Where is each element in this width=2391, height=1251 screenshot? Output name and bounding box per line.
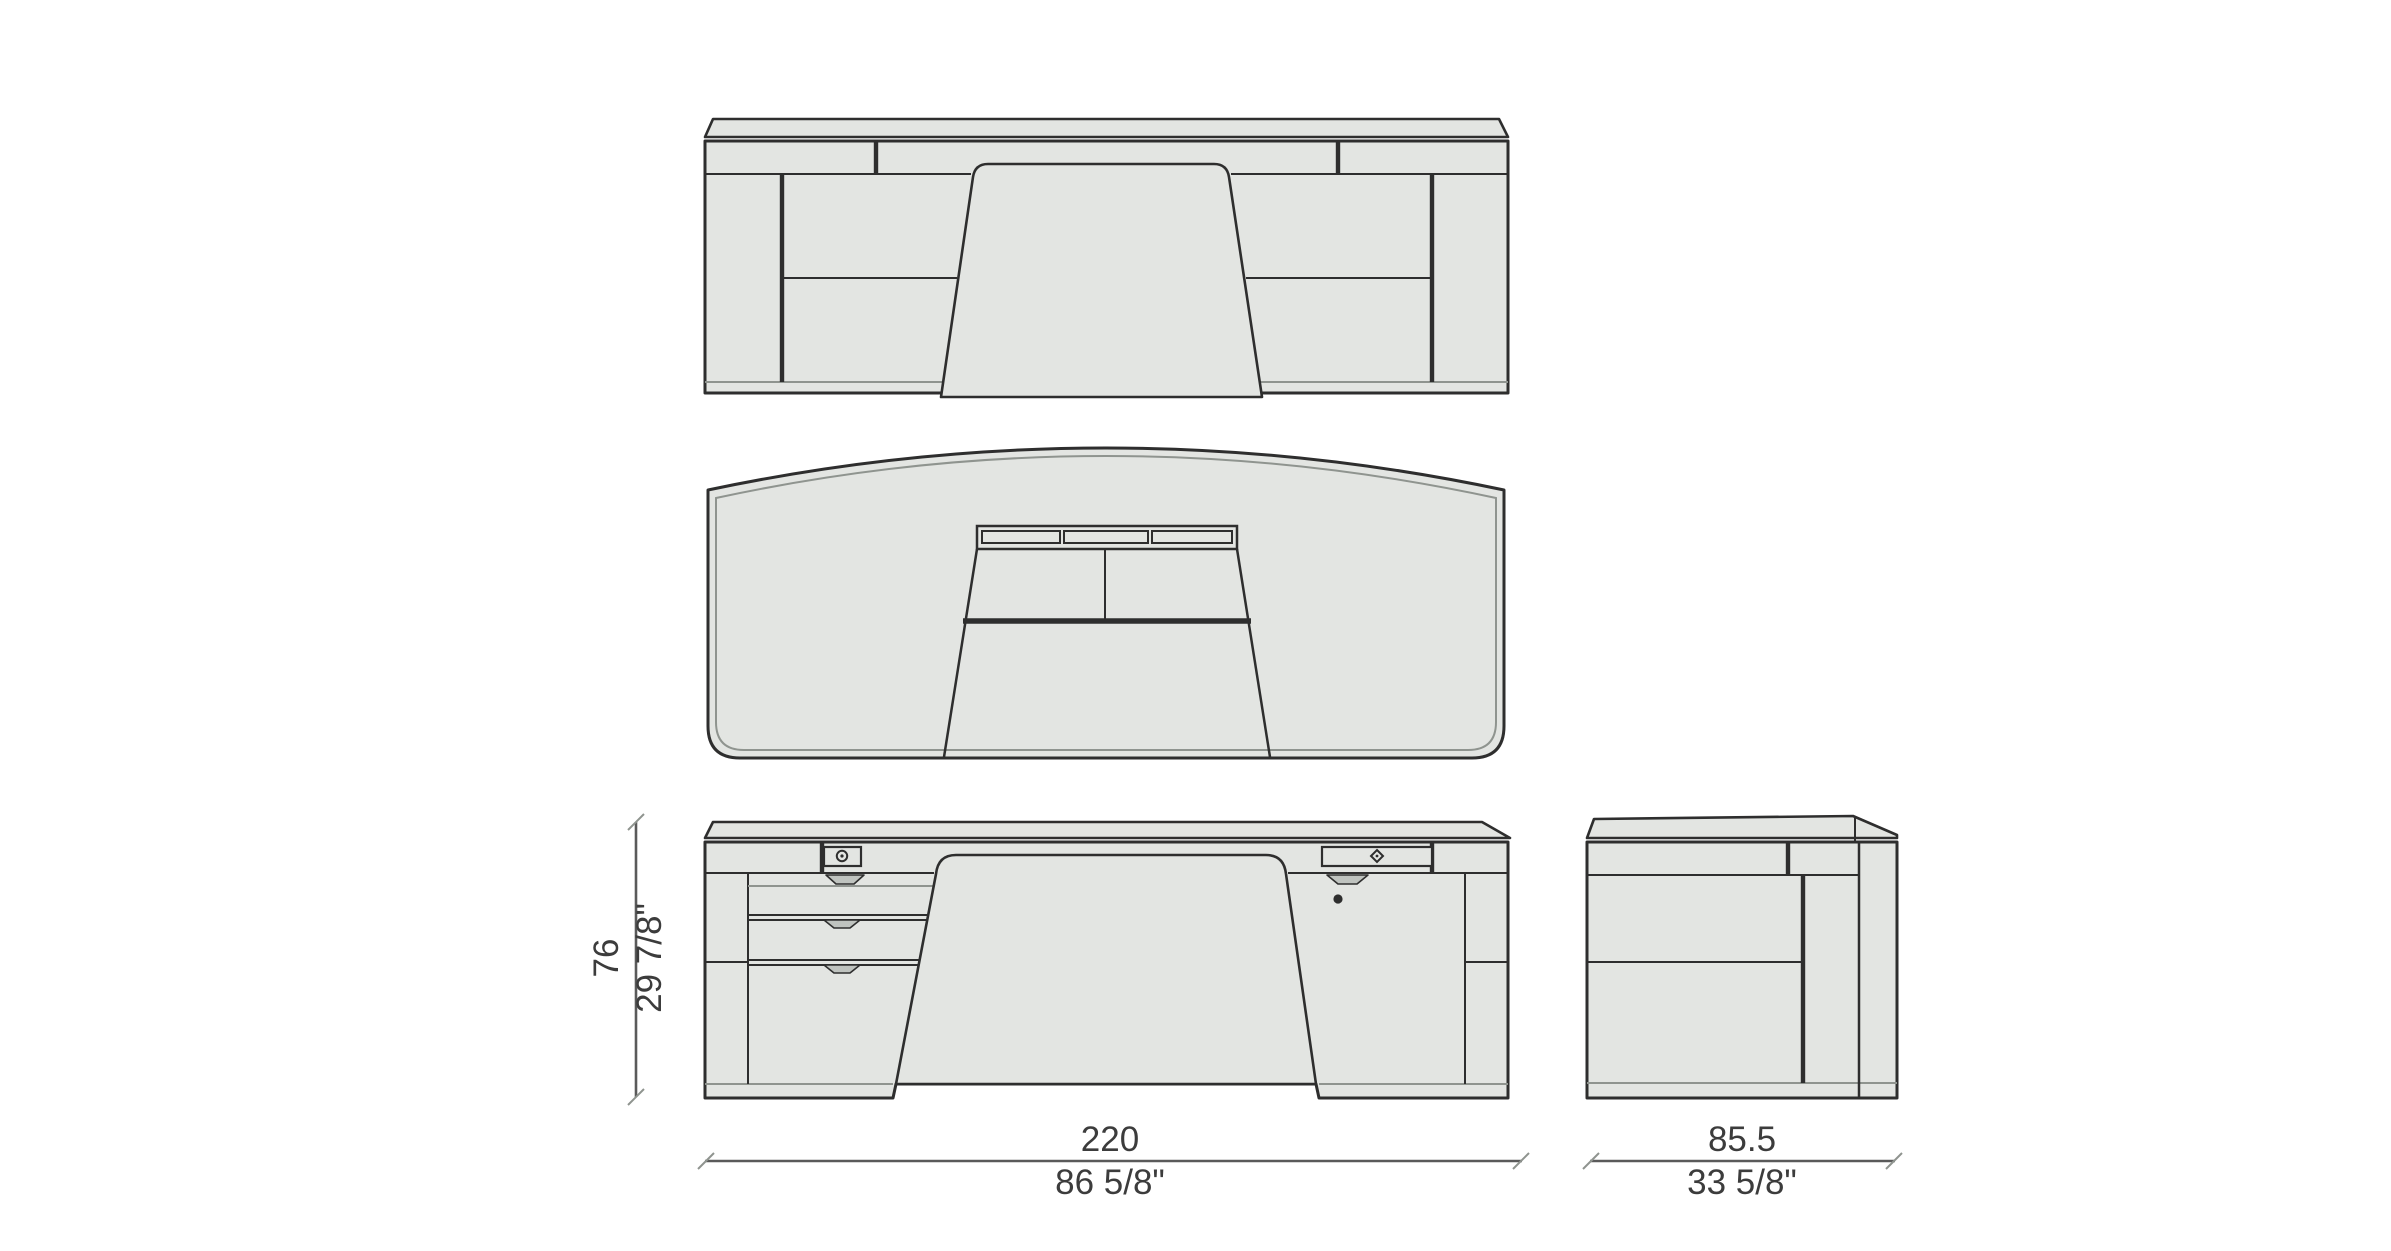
keyhole-icon <box>1333 894 1342 903</box>
back-knee-panel <box>941 164 1262 397</box>
depth-imperial-label: 33 5/8" <box>1687 1163 1797 1202</box>
front-knee-panel <box>896 855 1316 1084</box>
side-body <box>1587 842 1897 1098</box>
width-imperial-label: 86 5/8" <box>1055 1163 1165 1202</box>
front-top-slab <box>705 822 1510 838</box>
side-top-slab <box>1587 816 1897 838</box>
lock-plate-left <box>824 847 861 866</box>
back-top-slab <box>705 119 1508 137</box>
height-metric-label: 76 <box>587 939 626 978</box>
desk-technical-drawing: 76 29 7/8" 220 86 5/8" 85.5 33 5/8" <box>0 0 2391 1251</box>
height-imperial-label: 29 7/8" <box>630 903 669 1013</box>
depth-metric-label: 85.5 <box>1708 1120 1776 1159</box>
front-view <box>705 822 1510 1098</box>
keyhole-icon <box>840 854 843 857</box>
dimension-width: 220 86 5/8" <box>698 1120 1529 1202</box>
lock-plate-right <box>1322 847 1432 866</box>
plan-view <box>708 448 1504 758</box>
side-view <box>1587 816 1897 1098</box>
dimension-height: 76 29 7/8" <box>587 814 669 1105</box>
back-view <box>705 119 1508 397</box>
width-metric-label: 220 <box>1081 1120 1139 1159</box>
dimension-depth: 85.5 33 5/8" <box>1583 1120 1902 1202</box>
technical-drawing-page: 76 29 7/8" 220 86 5/8" 85.5 33 5/8" <box>0 0 2391 1251</box>
